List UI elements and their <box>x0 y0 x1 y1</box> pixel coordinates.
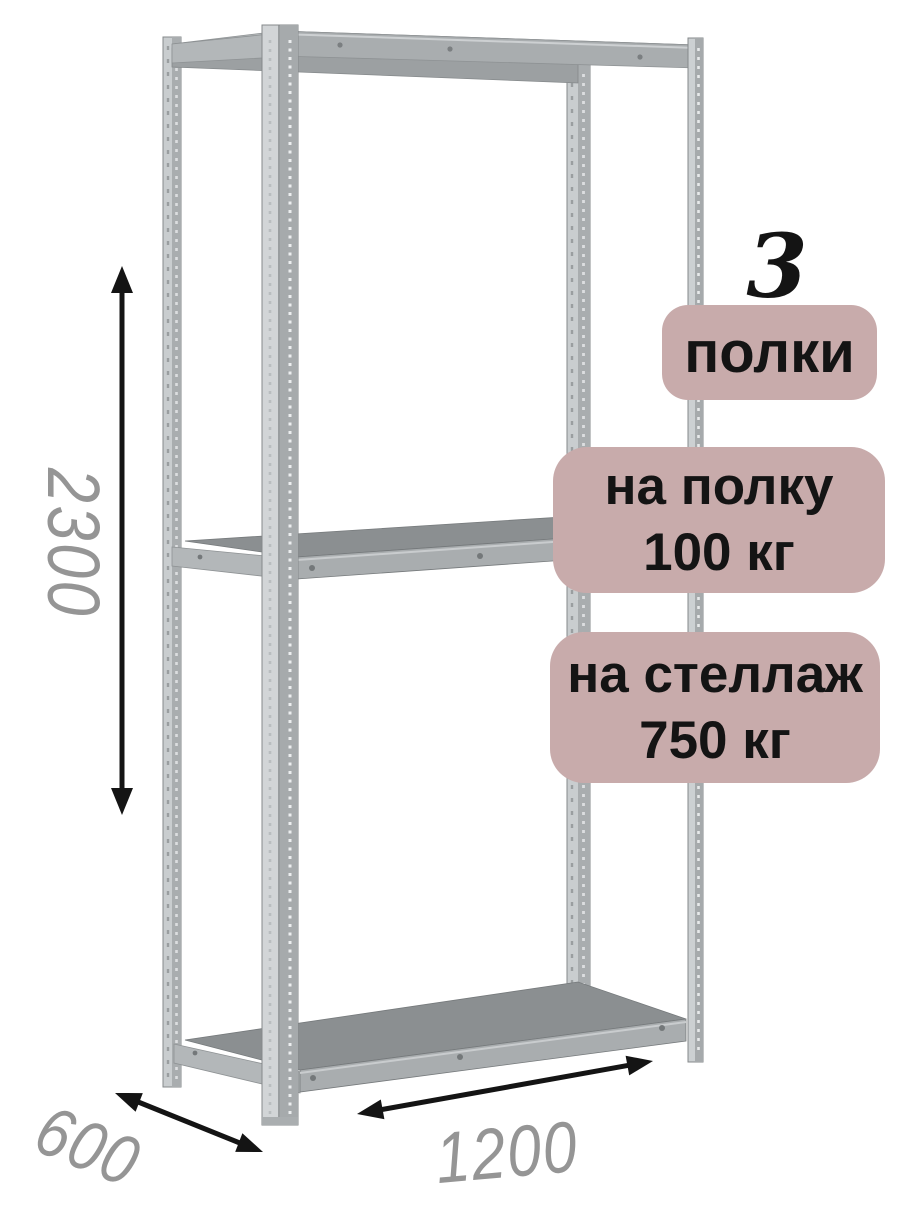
per-rack-load-line1: на стеллаж <box>567 642 863 708</box>
shelving-rack-illustration <box>0 0 900 1200</box>
front-left-post <box>262 25 298 1125</box>
bottom-shelf <box>174 982 686 1093</box>
shelf-count-number: 3 <box>707 222 847 310</box>
per-shelf-load-line2: 100 кг <box>643 520 795 586</box>
per-shelf-load-line1: на полку <box>605 454 834 520</box>
top-shelf <box>172 31 697 83</box>
per-shelf-load-badge: на полку 100 кг <box>553 447 885 593</box>
shelf-count-badge: полки <box>662 305 877 400</box>
product-image: 2300 600 1200 3 полки на полку 100 кг на… <box>0 0 900 1200</box>
per-rack-load-badge: на стеллаж 750 кг <box>550 632 880 783</box>
height-dimension-label: 2300 <box>33 416 113 671</box>
double-arrow-width-icon <box>357 1100 384 1120</box>
double-arrow-diagonal-icon <box>115 1093 143 1112</box>
shelf-count-label: полки <box>684 319 855 386</box>
double-arrow-vertical-icon <box>111 266 133 293</box>
per-rack-load-line2: 750 кг <box>639 708 791 774</box>
